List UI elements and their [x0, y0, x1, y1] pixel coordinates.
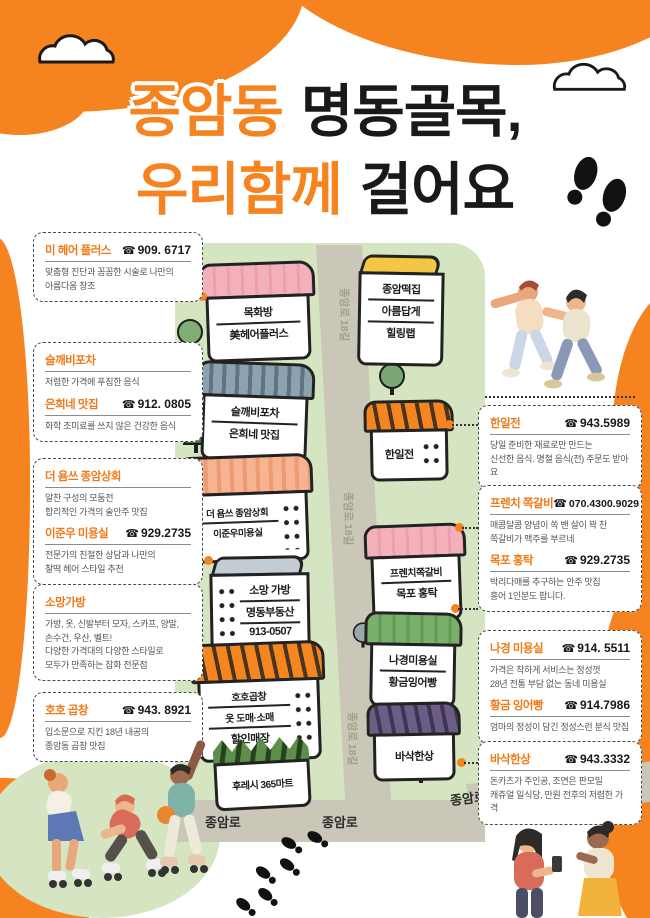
title-word-together: 우리함께 [136, 158, 342, 222]
windows [421, 439, 442, 469]
sign-line: 한일전 [380, 444, 418, 465]
shop-description: 저렴한 가격에 푸짐한 음식 [45, 376, 191, 390]
phone-number: 929.2735 [580, 553, 630, 567]
info-box-haniljeon: 한일전 ☎943.5989 당일 준비한 재료로만 만드는 신선한 음식. 명절… [478, 405, 642, 489]
phone-icon: ☎ [122, 705, 136, 717]
shop-phone: ☎943.3332 [564, 752, 630, 766]
info-box-sanghoe-lee: 더 욤쓰 종암상회 알찬 구성의 모둠전 합리적인 가격의 술안주 맛집 이준우… [33, 458, 203, 585]
shop-phone: ☎912. 0805 [122, 397, 191, 411]
shop-entry: 한일전 ☎943.5989 당일 준비한 재료로만 만드는 신선한 음식. 명절… [490, 415, 630, 480]
shop-phone: ☎909. 6717 [122, 243, 191, 257]
shop-description: 박리다매를 추구하는 안주 맛집 홍어 1인분도 팝니다. [490, 576, 630, 603]
phone-number: 943. 8921 [138, 703, 191, 717]
building-jongam-sanghoe: 더 욤쓰 종암상회 이준우미용실 [184, 453, 310, 564]
shop-entry: 바삭한상 ☎943.3332 돈카츠가 주인공, 조연은 판모밀 캐쥬얼 일식당… [490, 751, 630, 816]
building-facade: 목화방 美헤어플러스 [205, 293, 311, 363]
phone-number: 929.2735 [141, 526, 191, 540]
shop-entry: 황금 잉어빵 ☎914.7986 엄마의 정성이 담긴 정성스런 분식 맛집 [490, 697, 630, 735]
illustration-walking-couple [478, 270, 638, 398]
building-eunhui-matjip: 슬깨비포차 은희네 맛집 [200, 360, 309, 463]
sign-line: 호호곱창 [207, 685, 290, 709]
sign-line: 소망 가방 [239, 579, 299, 602]
phone-number: 943.5989 [580, 416, 630, 430]
phone-number: 912. 0805 [138, 397, 191, 411]
shop-name: 이준우 미용실 [45, 525, 108, 541]
footprint-trail-icon [228, 828, 358, 918]
building-facade: 종암떡집 아름답게 힐링랩 [357, 271, 445, 366]
sign-line: 후레시 365마트 [224, 772, 301, 795]
building-sign: 더 욤쓰 종암상회 이준우미용실 [196, 502, 279, 543]
shop-phone: ☎929.2735 [125, 526, 191, 540]
building-sign: 한일전 [380, 444, 418, 465]
info-box-nakyung-goldfish: 나경 미용실 ☎914. 5511 가격은 착하게 서비스는 정성껏 28년 전… [478, 630, 642, 744]
sign-line: 이준우미용실 [197, 522, 280, 543]
phone-number: 943.3332 [580, 752, 630, 766]
shop-name: 더 욤쓰 종암상회 [45, 468, 121, 484]
building-sign: 나경미용실 황금잉어빵 [379, 649, 446, 692]
sign-line: 美헤어플러스 [216, 323, 301, 346]
info-box-pocha-eunhui: 슬깨비포차 저렴한 가격에 푸짐한 음식 은희네 맛집 ☎912. 0805 화… [33, 342, 203, 442]
sign-line: 황금잉어빵 [379, 671, 445, 692]
connector-line [464, 762, 478, 764]
cloud-icon [545, 55, 633, 97]
cloud-icon [30, 26, 122, 70]
phone-icon: ☎ [125, 528, 139, 540]
shop-name: 슬깨비포차 [45, 352, 95, 368]
shop-phone: ☎914.7986 [564, 698, 630, 712]
building-sign: 바삭한상 [383, 745, 445, 766]
illustration-skaters [22, 735, 234, 918]
sign-line: 913-0507 [240, 623, 300, 640]
shop-name: 은희네 맛집 [45, 396, 98, 412]
shop-description: 화학 조미료를 쓰지 않은 건강한 음식 [45, 420, 191, 434]
building-sign: 종암떡집 아름답게 힐링랩 [367, 278, 434, 343]
phone-number: 914. 5511 [577, 641, 630, 655]
shop-name: 호호 곱창 [45, 702, 88, 718]
shop-description: 매콤달콤 양념이 쏙 밴 살이 꽉 찬 쪽갈비가 맥주를 부르네 [490, 519, 630, 546]
phone-number: 909. 6717 [138, 243, 191, 257]
phone-icon: ☎ [564, 555, 578, 567]
phone-number: 070.4300.9029 [569, 498, 639, 510]
building-sign: 목화방 美헤어플러스 [216, 301, 301, 346]
title-word-walk: 걸어요 [360, 158, 514, 222]
sign-line: 목포 홍탁 [381, 582, 452, 604]
phone-icon: ☎ [122, 399, 136, 411]
info-box-somang-gabang: 소망가방 가방, 옷, 신발부터 모자, 스카프, 양말, 손수건, 우산, 벨… [33, 584, 203, 681]
map-marker-dot [204, 556, 213, 565]
shop-name: 황금 잉어빵 [490, 697, 543, 713]
connector-line [462, 527, 478, 529]
shop-name: 바삭한상 [490, 751, 530, 767]
phone-icon: ☎ [122, 245, 136, 257]
building-facade: 바삭한상 [373, 732, 456, 781]
sign-line: 은희네 맛집 [211, 422, 298, 445]
connector-line [452, 424, 478, 426]
building-facade: 한일전 [370, 428, 449, 481]
shop-phone: ☎070.4300.9029 [553, 497, 639, 510]
shop-entry: 더 욤쓰 종암상회 알찬 구성의 모둠전 합리적인 가격의 술안주 맛집 [45, 468, 191, 519]
sign-line: 목화방 [216, 301, 301, 326]
connector-line [458, 608, 478, 610]
shop-name: 한일전 [490, 415, 520, 431]
shop-entry: 목포 홍탁 ☎929.2735 박리다매를 추구하는 안주 맛집 홍어 1인분도… [490, 552, 630, 603]
shop-description: 가방, 옷, 신발부터 모자, 스카프, 양말, 손수건, 우산, 벨트! 다양… [45, 618, 191, 672]
sign-line: 바삭한상 [383, 745, 445, 766]
road-label-vertical: 종암로 18길 [341, 492, 356, 545]
illustration-phone-couple [486, 820, 650, 918]
sign-line: 아름답게 [368, 300, 434, 323]
shop-description: 맞춤형 진단과 꼼꼼한 시술로 나만의 아름다움 창조 [45, 266, 191, 293]
shop-phone: ☎914. 5511 [562, 641, 630, 655]
shop-name: 소망가방 [45, 594, 85, 610]
poster: 종암동명동골목, 우리함께걸어요 종암로 18길 종암로 18길 종암로 18길… [0, 0, 650, 918]
info-box-jjokgalbi-hongtak: 프렌치 쪽갈비 ☎070.4300.9029 매콤달콤 양념이 쏙 밴 살이 꽉… [478, 485, 642, 612]
sign-line: 옷 도매·소매 [208, 706, 291, 730]
road-label-vertical: 종암로 18길 [337, 288, 352, 341]
building-facade: 나경미용실 황금잉어빵 [369, 642, 456, 707]
building-facade: 더 욤쓰 종암상회 이준우미용실 [185, 490, 309, 564]
shop-entry: 은희네 맛집 ☎912. 0805 화학 조미료를 쓰지 않은 건강한 음식 [45, 396, 191, 434]
shop-name: 나경 미용실 [490, 640, 543, 656]
building-sign: 소망 가방 명동부동산 913-0507 [239, 579, 300, 640]
sign-line: 슬깨비포차 [212, 401, 299, 426]
shop-description: 알찬 구성의 모둠전 합리적인 가격의 술안주 맛집 [45, 492, 191, 519]
shop-entry: 소망가방 가방, 옷, 신발부터 모자, 스카프, 양말, 손수건, 우산, 벨… [45, 594, 191, 672]
phone-icon: ☎ [553, 498, 567, 510]
phone-icon: ☎ [562, 643, 576, 655]
shop-phone: ☎943.5989 [564, 416, 630, 430]
title-word-myeongdong: 명동골목, [301, 80, 522, 144]
building-jongam-tteokjip: 종암떡집 아름답게 힐링랩 [357, 254, 445, 366]
sign-line: 힐링랩 [367, 322, 433, 343]
shop-entry: 프렌치 쪽갈비 ☎070.4300.9029 매콤달콤 양념이 쏙 밴 살이 꽉… [490, 495, 630, 546]
shop-entry: 나경 미용실 ☎914. 5511 가격은 착하게 서비스는 정성껏 28년 전… [490, 640, 630, 691]
building-sign: 후레시 365마트 [224, 772, 301, 795]
info-box-mi-hair-plus: 미 헤어 플러스 ☎909. 6717 맞춤형 진단과 꼼꼼한 시술로 나만의 … [33, 232, 203, 302]
phone-icon: ☎ [564, 754, 578, 766]
shop-name: 미 헤어 플러스 [45, 242, 111, 258]
shop-phone: ☎929.2735 [564, 553, 630, 567]
building-basak-hansang: 바삭한상 [372, 701, 455, 781]
building-nakyung-miyongsil: 나경미용실 황금잉어빵 [369, 611, 457, 707]
shop-entry: 미 헤어 플러스 ☎909. 6717 맞춤형 진단과 꼼꼼한 시술로 나만의 … [45, 242, 191, 293]
building-haniljeon: 한일전 [369, 399, 448, 481]
title-word-jongamdong: 종암동 [129, 80, 283, 144]
shop-name: 프렌치 쪽갈비 [490, 495, 553, 511]
building-mokhwabang: 목화방 美헤어플러스 [204, 260, 311, 363]
shop-entry: 슬깨비포차 저렴한 가격에 푸짐한 음식 [45, 352, 191, 390]
phone-icon: ☎ [564, 700, 578, 712]
shop-description: 돈카츠가 주인공, 조연은 판모밀 캐쥬얼 일식당, 만원 전후의 저렴한 가격 [490, 775, 630, 816]
shop-entry: 이준우 미용실 ☎929.2735 전문가의 친절한 상담과 나만의 찰떡 헤어… [45, 525, 191, 576]
footprints-icon [555, 150, 640, 245]
shop-description: 당일 준비한 재료로만 만드는 신선한 음식. 명절 음식(전) 주문도 받아요 [490, 439, 630, 480]
info-box-basak-hansang: 바삭한상 ☎943.3332 돈카츠가 주인공, 조연은 판모밀 캐쥬얼 일식당… [478, 741, 642, 825]
sign-line: 명동부동산 [240, 601, 300, 624]
building-sign: 슬깨비포차 은희네 맛집 [211, 401, 298, 446]
shop-phone: ☎943. 8921 [122, 703, 191, 717]
sign-line: 나경미용실 [380, 649, 446, 672]
poster-title-line-2: 우리함께걸어요 [0, 144, 650, 226]
phone-number: 914.7986 [580, 698, 630, 712]
building-sign: 프렌치쪽갈비 목포 홍탁 [381, 561, 452, 604]
windows [281, 501, 303, 550]
shop-description: 엄마의 정성이 담긴 정성스런 분식 맛집 [490, 721, 630, 735]
shop-name: 목포 홍탁 [490, 552, 533, 568]
tree-icon [378, 362, 406, 396]
road-label-vertical: 종암로 18길 [345, 712, 360, 765]
shop-description: 가격은 착하게 서비스는 정성껏 28년 전통 부담 없는 동네 미용실 [490, 664, 630, 691]
building-french-jjokgalbi: 프렌치쪽갈비 목포 홍탁 [369, 522, 462, 622]
sign-line: 종암떡집 [368, 278, 434, 301]
sign-line: 프렌치쪽갈비 [381, 561, 452, 584]
orange-blob-left-band [0, 238, 30, 738]
shop-description: 전문가의 친절한 상담과 나만의 찰떡 헤어 스타일 추천 [45, 549, 191, 576]
phone-icon: ☎ [564, 418, 578, 430]
